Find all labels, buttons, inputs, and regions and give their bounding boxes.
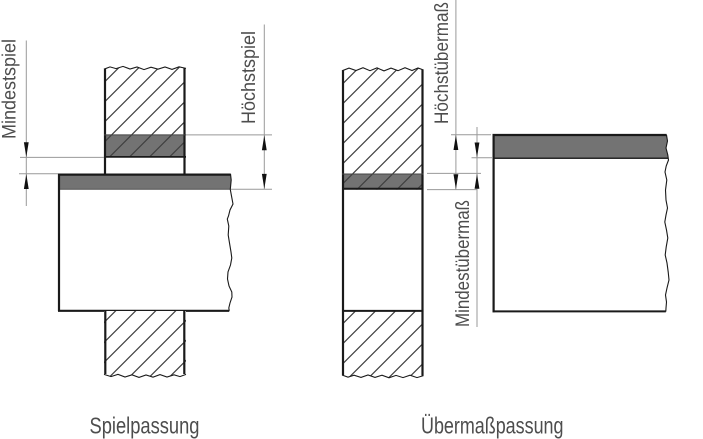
svg-text:Mindestübermaß: Mindestübermaß [453,200,474,327]
svg-text:Mindestspiel: Mindestspiel [0,39,21,139]
svg-text:Spielpassung: Spielpassung [90,413,200,439]
svg-text:Höchstspiel: Höchstspiel [239,31,260,124]
svg-text:Übermaßpassung: Übermaßpassung [421,413,564,439]
svg-text:Höchstübermaß: Höchstübermaß [432,2,453,124]
